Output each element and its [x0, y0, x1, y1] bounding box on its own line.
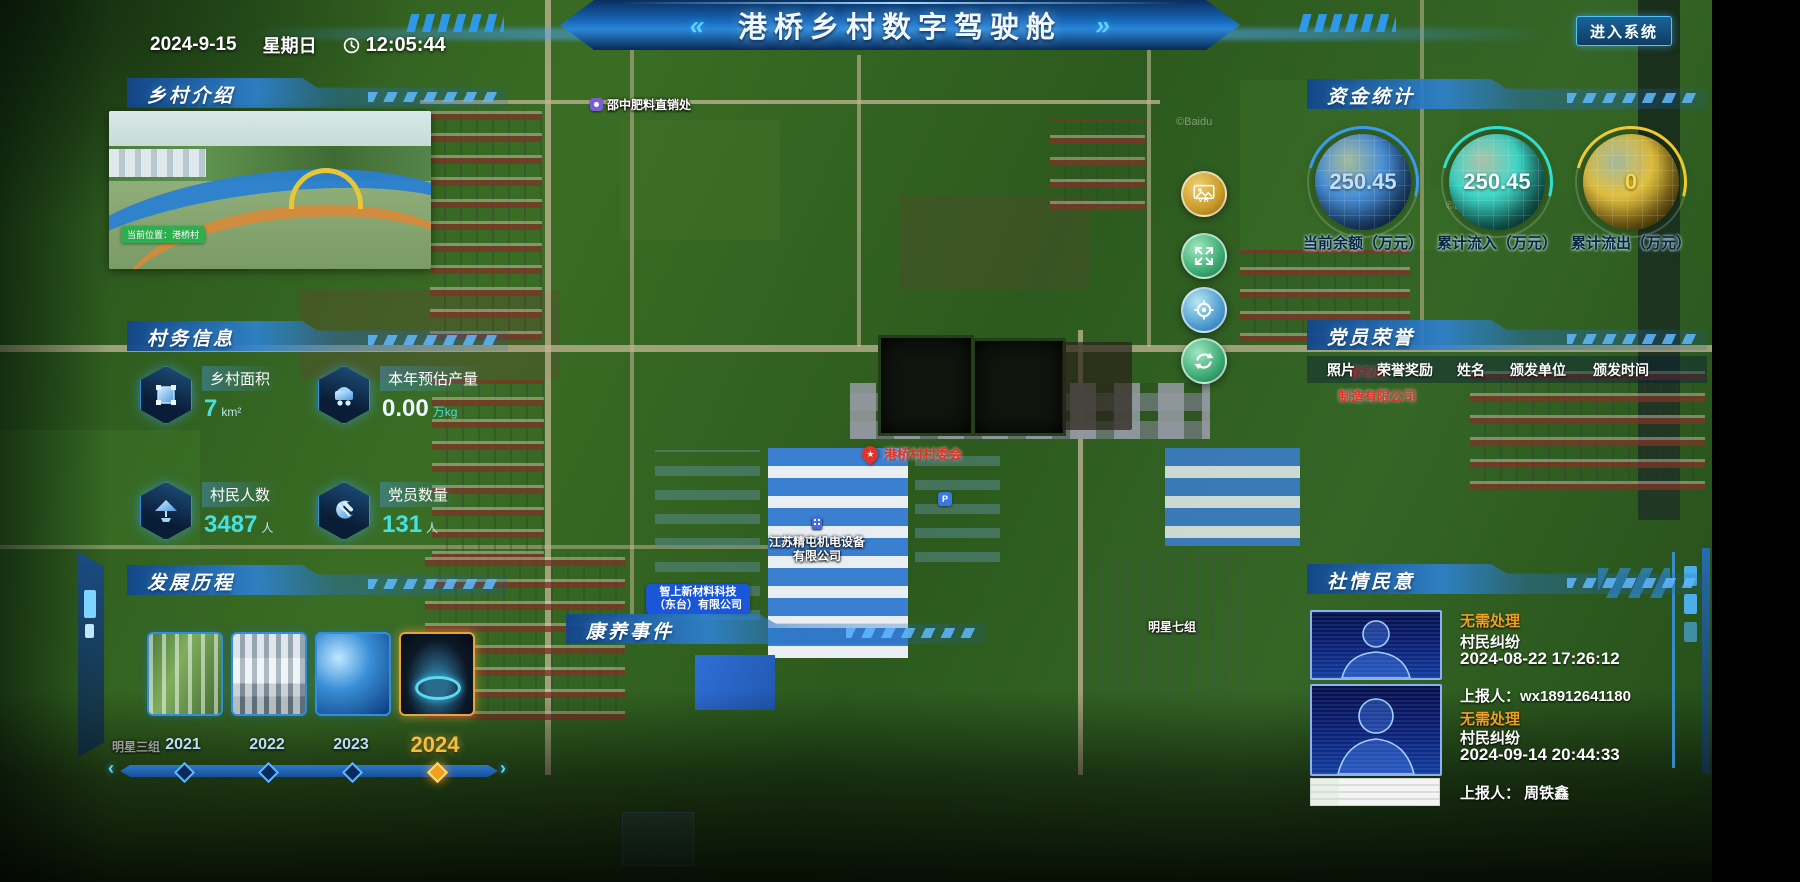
frame-accent — [85, 624, 94, 638]
sentiment-reporter: 上报人： 周铁鑫 — [1460, 782, 1569, 803]
stat-unit: 人 — [261, 521, 273, 535]
area-icon — [140, 366, 192, 424]
banner-stripes-left — [404, 14, 504, 32]
swap-arrows-icon — [1193, 350, 1215, 372]
stat-label: 本年预估产量 — [380, 366, 488, 391]
poi-label: 港桥村村委会 — [884, 444, 962, 463]
stat-label: 乡村面积 — [202, 366, 280, 391]
sentiment-reporter: 上报人：wx18912641180 — [1460, 685, 1631, 706]
map-houses — [1470, 370, 1705, 490]
year-2024[interactable]: 2024 — [399, 732, 471, 758]
hologram-person-icon — [1312, 612, 1440, 678]
map-pond — [878, 335, 974, 436]
building-icon — [810, 516, 824, 530]
panel-title: 党员荣誉 — [1327, 323, 1415, 350]
honors-col-issuer: 颁发单位 — [1510, 360, 1566, 380]
cart-icon — [318, 366, 370, 424]
stat-value: 131 — [382, 511, 422, 538]
poi-village-committee[interactable]: ★ 港桥村村委会 — [862, 444, 962, 463]
gauge-value: 0 — [1625, 169, 1637, 195]
red-star-pin-icon: ★ — [859, 442, 882, 465]
panel-title: 发展历程 — [147, 568, 235, 595]
sentiment-avatar[interactable] — [1310, 684, 1442, 776]
stat-unit: 万kg — [433, 405, 458, 419]
history-thumb-2024[interactable] — [399, 632, 475, 716]
hologram-person-icon — [1312, 686, 1440, 774]
gauge-balance: 250.45 — [1315, 134, 1411, 230]
header-stripes — [1567, 578, 1697, 588]
poi-company-red-line2: 制造有限公司 — [1338, 386, 1416, 405]
honors-col-award: 荣誉奖励 — [1377, 360, 1433, 380]
control-room-ring — [415, 676, 461, 700]
poi-label-line2: 有限公司 — [752, 549, 882, 563]
datetime-block: 2024-9-15 星期日 12:05:44 — [150, 32, 446, 58]
map-road — [630, 0, 634, 630]
enter-system-button[interactable]: 进入系统 — [1576, 16, 1672, 46]
history-thumb-2023[interactable] — [315, 632, 391, 716]
frame-accent — [84, 590, 96, 618]
photo-buildings — [109, 149, 206, 177]
map-pond — [972, 338, 1066, 436]
gauge-label-balance: 当前余额（万元） — [1288, 232, 1438, 253]
frame-accent — [1684, 594, 1697, 614]
year-2022[interactable]: 2022 — [231, 736, 303, 754]
panel-title: 村务信息 — [147, 324, 235, 351]
villager-icon — [140, 482, 192, 540]
map-blue-roof — [695, 655, 775, 710]
map-road — [420, 100, 1160, 104]
expand-arrows-icon — [1193, 245, 1215, 267]
map-road — [857, 55, 861, 347]
map-houses — [430, 110, 542, 340]
gauge-outflow: 0 — [1583, 134, 1679, 230]
map-field-patch — [1062, 342, 1132, 430]
vr-image-button[interactable]: VR — [1181, 171, 1227, 217]
honors-col-photo: 照片 — [1327, 360, 1355, 380]
village-photo: 当前位置：港桥村 — [109, 111, 431, 269]
stat-village-area: 乡村面积 7km² — [140, 362, 312, 438]
poi-label-line1: 智上新材料科技 — [652, 586, 744, 599]
stat-estimated-output: 本年预估产量 0.00万kg — [318, 362, 490, 438]
weekday-text: 星期日 — [263, 32, 317, 58]
timeline-next-arrow[interactable]: › — [500, 758, 506, 779]
title-banner: « 港桥乡村数字驾驶舱 » — [560, 0, 1240, 50]
poi-company-jingtun[interactable]: 江苏精屯机电设备 有限公司 — [752, 516, 882, 563]
poi-company-zhishang[interactable]: 智上新材料科技 （东台）有限公司 — [646, 584, 750, 614]
header-stripes — [1567, 334, 1697, 344]
map-factory — [1165, 448, 1300, 546]
honors-col-name: 姓名 — [1457, 360, 1485, 380]
sentiment-time: 2024-09-14 20:44:33 — [1460, 745, 1620, 765]
poi-group7: 明星七组 — [1148, 618, 1196, 635]
history-thumb-2022[interactable] — [231, 632, 307, 716]
map-road — [1420, 0, 1424, 350]
stat-villager-count: 村民人数 3487人 — [140, 478, 312, 554]
map-field-patch — [620, 120, 780, 240]
location-tag: 当前位置：港桥村 — [121, 226, 205, 243]
panel-title: 社情民意 — [1327, 567, 1415, 594]
stat-value: 0.00 — [382, 395, 429, 422]
chevron-right-icon: » — [1093, 10, 1114, 41]
stat-value: 7 — [204, 395, 217, 422]
stat-label: 党员数量 — [380, 482, 458, 507]
chevron-left-icon: « — [686, 10, 707, 41]
map-factory — [915, 450, 1000, 562]
header-stripes — [368, 335, 498, 345]
year-2023[interactable]: 2023 — [315, 736, 387, 754]
stat-value: 3487 — [204, 511, 257, 538]
left-frame-decoration — [78, 552, 104, 757]
header-stripes — [1567, 93, 1697, 103]
stat-party-member-count: 党员数量 131人 — [318, 478, 490, 554]
gauge-label-outflow: 累计流出（万元） — [1556, 232, 1706, 253]
banner-stripes-right — [1296, 14, 1396, 32]
page-title: 港桥乡村数字驾驶舱 — [738, 4, 1062, 46]
poi-label-line2: （东台）有限公司 — [652, 599, 744, 612]
store-icon — [590, 98, 603, 111]
gauge-value: 250.45 — [1463, 169, 1530, 195]
year-2021[interactable]: 2021 — [147, 736, 219, 754]
sentiment-time: 2024-08-22 17:26:12 — [1460, 649, 1620, 669]
fullscreen-button[interactable] — [1181, 233, 1227, 279]
stat-unit: km² — [221, 405, 241, 419]
header-stripes — [368, 579, 498, 589]
honors-col-date: 颁发时间 — [1593, 360, 1649, 380]
sentiment-avatar[interactable] — [1310, 610, 1442, 680]
gauge-inflow: 250.45 — [1449, 134, 1545, 230]
map-building-dim — [622, 812, 694, 866]
sentiment-status: 无需处理 — [1460, 610, 1520, 631]
clock-icon — [343, 37, 360, 54]
dashboard: 邵中肥料直销处 ★ 港桥村村委会 江苏精屯机电设备 有限公司 智上新材料科技 （… — [0, 0, 1800, 882]
locate-button[interactable] — [1181, 287, 1227, 333]
poi-label: 邵中肥料直销处 — [607, 96, 691, 113]
panel-title: 乡村介绍 — [147, 81, 235, 108]
timeline-prev-arrow[interactable]: ‹ — [108, 758, 114, 779]
stat-label: 村民人数 — [202, 482, 280, 507]
history-thumb-2021[interactable] — [147, 632, 223, 716]
gauge-value: 250.45 — [1329, 169, 1396, 195]
vr-label: VR — [1198, 197, 1210, 204]
switch-map-button[interactable] — [1181, 338, 1227, 384]
panel-title: 康养事件 — [586, 617, 674, 644]
frame-accent — [1684, 622, 1697, 642]
poi-p-icon[interactable]: P — [938, 492, 952, 506]
header-stripes — [846, 628, 976, 638]
time-text: 12:05:44 — [366, 34, 446, 57]
sentiment-status: 无需处理 — [1460, 708, 1520, 729]
date-text: 2024-9-15 — [150, 34, 237, 56]
sentiment-screenshot-thumb[interactable] — [1310, 778, 1440, 806]
stat-unit: 人 — [426, 521, 438, 535]
party-emblem-icon — [318, 482, 370, 540]
panel-title: 资金统计 — [1327, 82, 1415, 109]
poi-fertilizer-store[interactable]: 邵中肥料直销处 — [590, 96, 691, 113]
target-icon — [1193, 299, 1215, 321]
poi-label-line1: 江苏精屯机电设备 — [752, 535, 882, 549]
map-houses — [1050, 120, 1145, 210]
map-road — [1147, 0, 1151, 347]
gauge-label-inflow: 累计流入（万元） — [1422, 232, 1572, 253]
header-stripes — [368, 92, 498, 102]
baidu-watermark: ©Baidu — [1176, 116, 1212, 128]
